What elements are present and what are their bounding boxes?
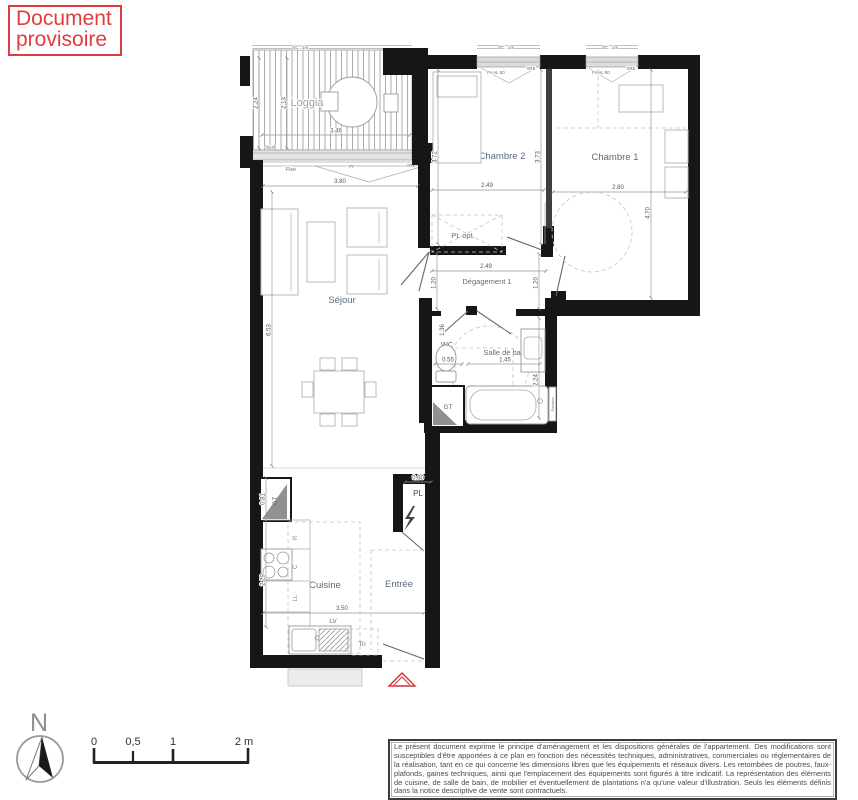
- cuisine-label: Cuisine: [309, 580, 341, 591]
- chambre1-door: [556, 256, 565, 296]
- shutter-tag: VRE: [526, 66, 535, 71]
- dishwasher: [319, 629, 348, 651]
- north-label: N: [30, 709, 48, 737]
- dim-loggia-depth-outer: 2.24: [254, 97, 260, 109]
- entrance-arrow: [389, 673, 415, 686]
- chambre2-label: Chambre 2: [479, 151, 526, 162]
- sejour-label: Séjour: [328, 295, 355, 306]
- recycling-label: Tri: [358, 641, 365, 648]
- pl-label: PL: [413, 489, 423, 498]
- guardrail-label: GC : 1m: [602, 45, 619, 50]
- entrance-door: [383, 644, 424, 659]
- dim-loggia-width: 3.46: [330, 129, 342, 135]
- dining-chair: [320, 414, 335, 426]
- chambre2-door: [507, 237, 542, 250]
- dim-degagement-height-left: 1.20: [432, 277, 438, 289]
- dim-degagement-height-right: 1.20: [534, 277, 540, 289]
- chambre1-wardrobe: [665, 167, 688, 198]
- dining-chair: [342, 414, 357, 426]
- armchair: [347, 208, 387, 247]
- scale-tick-0: 0: [91, 736, 97, 748]
- toilet-tank: [436, 371, 456, 382]
- dining-table: [314, 371, 364, 413]
- dim-sejour-height: 6.53: [267, 324, 273, 336]
- dim-duct-height: 0.81: [261, 493, 267, 505]
- bathroom-door: [477, 311, 511, 334]
- window-tag: FA AL 50: [592, 70, 610, 75]
- loggia-chair: [384, 94, 398, 112]
- washbasin-vanity: [521, 329, 545, 372]
- sliding-door-swing: [315, 166, 424, 182]
- legal-disclaimer: Le présent document exprime le principe …: [388, 739, 837, 800]
- hob-label: C: [293, 564, 299, 569]
- chambre2-pillow: [437, 76, 477, 97]
- entree-label: Entrée: [385, 579, 413, 590]
- scale-tick-05: 0,5: [125, 736, 140, 748]
- coffee-table: [307, 222, 335, 282]
- chambre1-wardrobe: [665, 130, 688, 163]
- dim-chambre2-height-left: 3.72: [433, 151, 439, 163]
- dim-cuisine-width: 3.50: [336, 606, 348, 612]
- dishwasher-label: LV: [329, 618, 337, 625]
- scale-tick-2m: 2 m: [235, 736, 253, 748]
- floor-plan-drawing: Loggia Seuil Fixe PF VRE GC : 1m GC : 1m…: [0, 0, 858, 800]
- dining-chair: [320, 358, 335, 370]
- dim-pl-width: 0.60: [412, 476, 424, 482]
- degagement-label: Dégagement 1: [462, 277, 511, 286]
- dining-chair: [302, 382, 313, 397]
- loggia-label: Loggia: [290, 97, 324, 109]
- compass-needle-white: [26, 737, 42, 780]
- loggia-threshold-sill: [252, 150, 412, 160]
- dim-counter-height: 2.29: [261, 574, 267, 586]
- french-door-label: PF: [349, 164, 355, 169]
- dim-sdb-height: 2.24: [534, 374, 540, 386]
- radiator-label: Radiateur: [551, 396, 555, 412]
- duct-label: GT: [273, 497, 279, 506]
- north-compass: N: [17, 709, 63, 782]
- dim-chambre2-height-right: 3.73: [536, 151, 542, 163]
- dim-sdb-width: 1.45: [499, 358, 511, 364]
- floor-plan-page: Document provisoire: [0, 0, 858, 800]
- window-tag: FA AL 50: [487, 70, 505, 75]
- shutter-tag: VRE: [626, 66, 635, 71]
- dim-chambre1-width: 2.80: [612, 185, 624, 191]
- dim-degagement-width: 2.49: [480, 264, 492, 270]
- doors: [383, 237, 565, 661]
- salle-de-bain-label: Salle de bain: [483, 348, 526, 357]
- dim-loggia-depth-inner: 2.13: [282, 97, 288, 109]
- seuil-label: Seuil: [265, 145, 275, 150]
- guardrail-label: GC : 1m: [498, 45, 515, 50]
- chambre1-label: Chambre 1: [592, 152, 639, 163]
- dim-wc-height: 1.36: [440, 324, 446, 336]
- closet-door: [402, 532, 424, 551]
- guardrail-label: GC : 1m: [292, 45, 309, 50]
- dim-chambre2-width: 2.49: [481, 183, 493, 189]
- living-room-furniture: [261, 208, 425, 468]
- chambre1-furniture: [619, 85, 663, 112]
- fridge-label: R: [293, 535, 299, 540]
- fixed-pane-label: Fixe: [286, 167, 296, 173]
- sofa: [261, 209, 298, 295]
- dining-chair: [365, 382, 376, 397]
- scale-tick-1: 1: [170, 736, 176, 748]
- duct-label: GT: [443, 404, 452, 411]
- scale-bar: 0 0,5 1 2 m: [91, 736, 253, 763]
- washer-label: LL: [293, 594, 299, 601]
- exterior-ledge: [288, 669, 362, 686]
- dim-wc-width: 0.55: [442, 358, 454, 364]
- electrical-panel-icon: [404, 506, 415, 531]
- loggia-chair: [321, 92, 338, 111]
- bedroom-furniture: [433, 69, 688, 272]
- dim-chambre1-height: 4.70: [646, 207, 652, 219]
- dim-sejour-width: 3.80: [334, 179, 346, 185]
- armchair: [347, 255, 387, 294]
- dining-chair: [342, 358, 357, 370]
